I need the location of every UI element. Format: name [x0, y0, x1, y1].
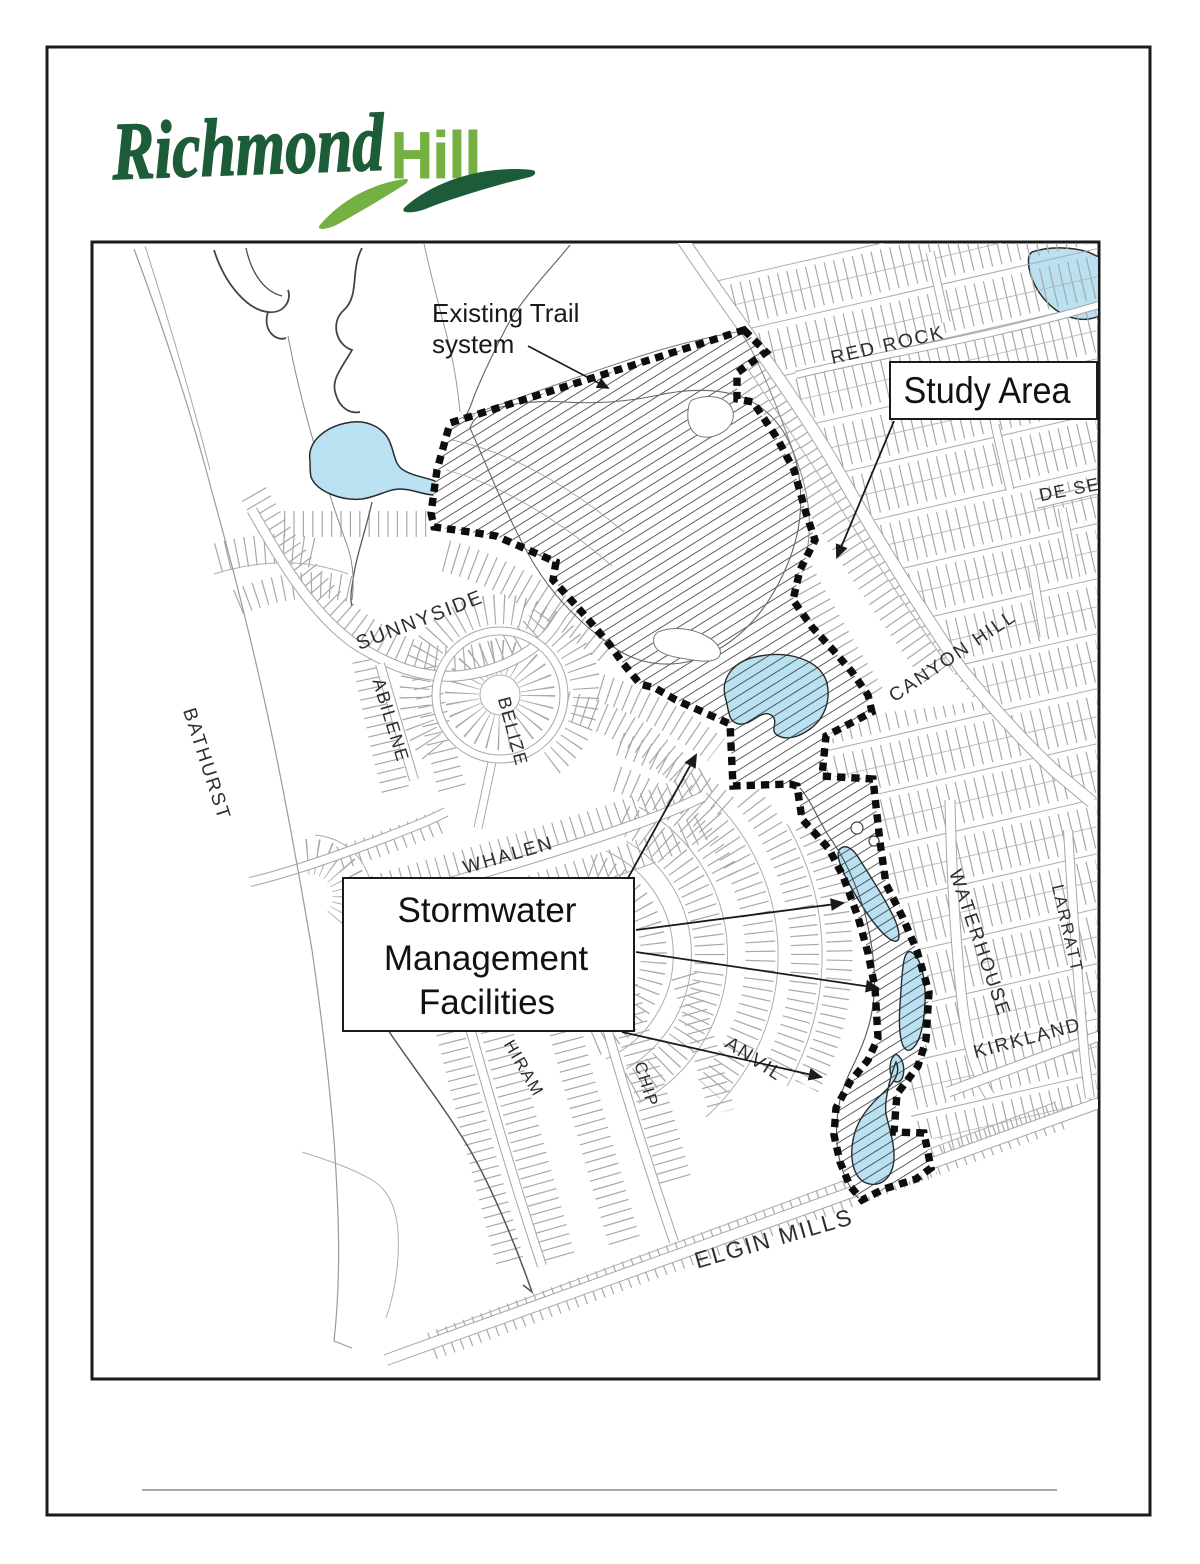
svg-text:Study Area: Study Area: [904, 370, 1071, 411]
svg-text:Stormwater: Stormwater: [398, 891, 577, 930]
svg-text:Existing Trail: Existing Trail: [432, 298, 579, 328]
svg-text:system: system: [432, 329, 514, 359]
svg-text:Management: Management: [384, 939, 589, 978]
svg-text:Richmond: Richmond: [110, 97, 387, 197]
svg-text:Facilities: Facilities: [419, 983, 555, 1022]
